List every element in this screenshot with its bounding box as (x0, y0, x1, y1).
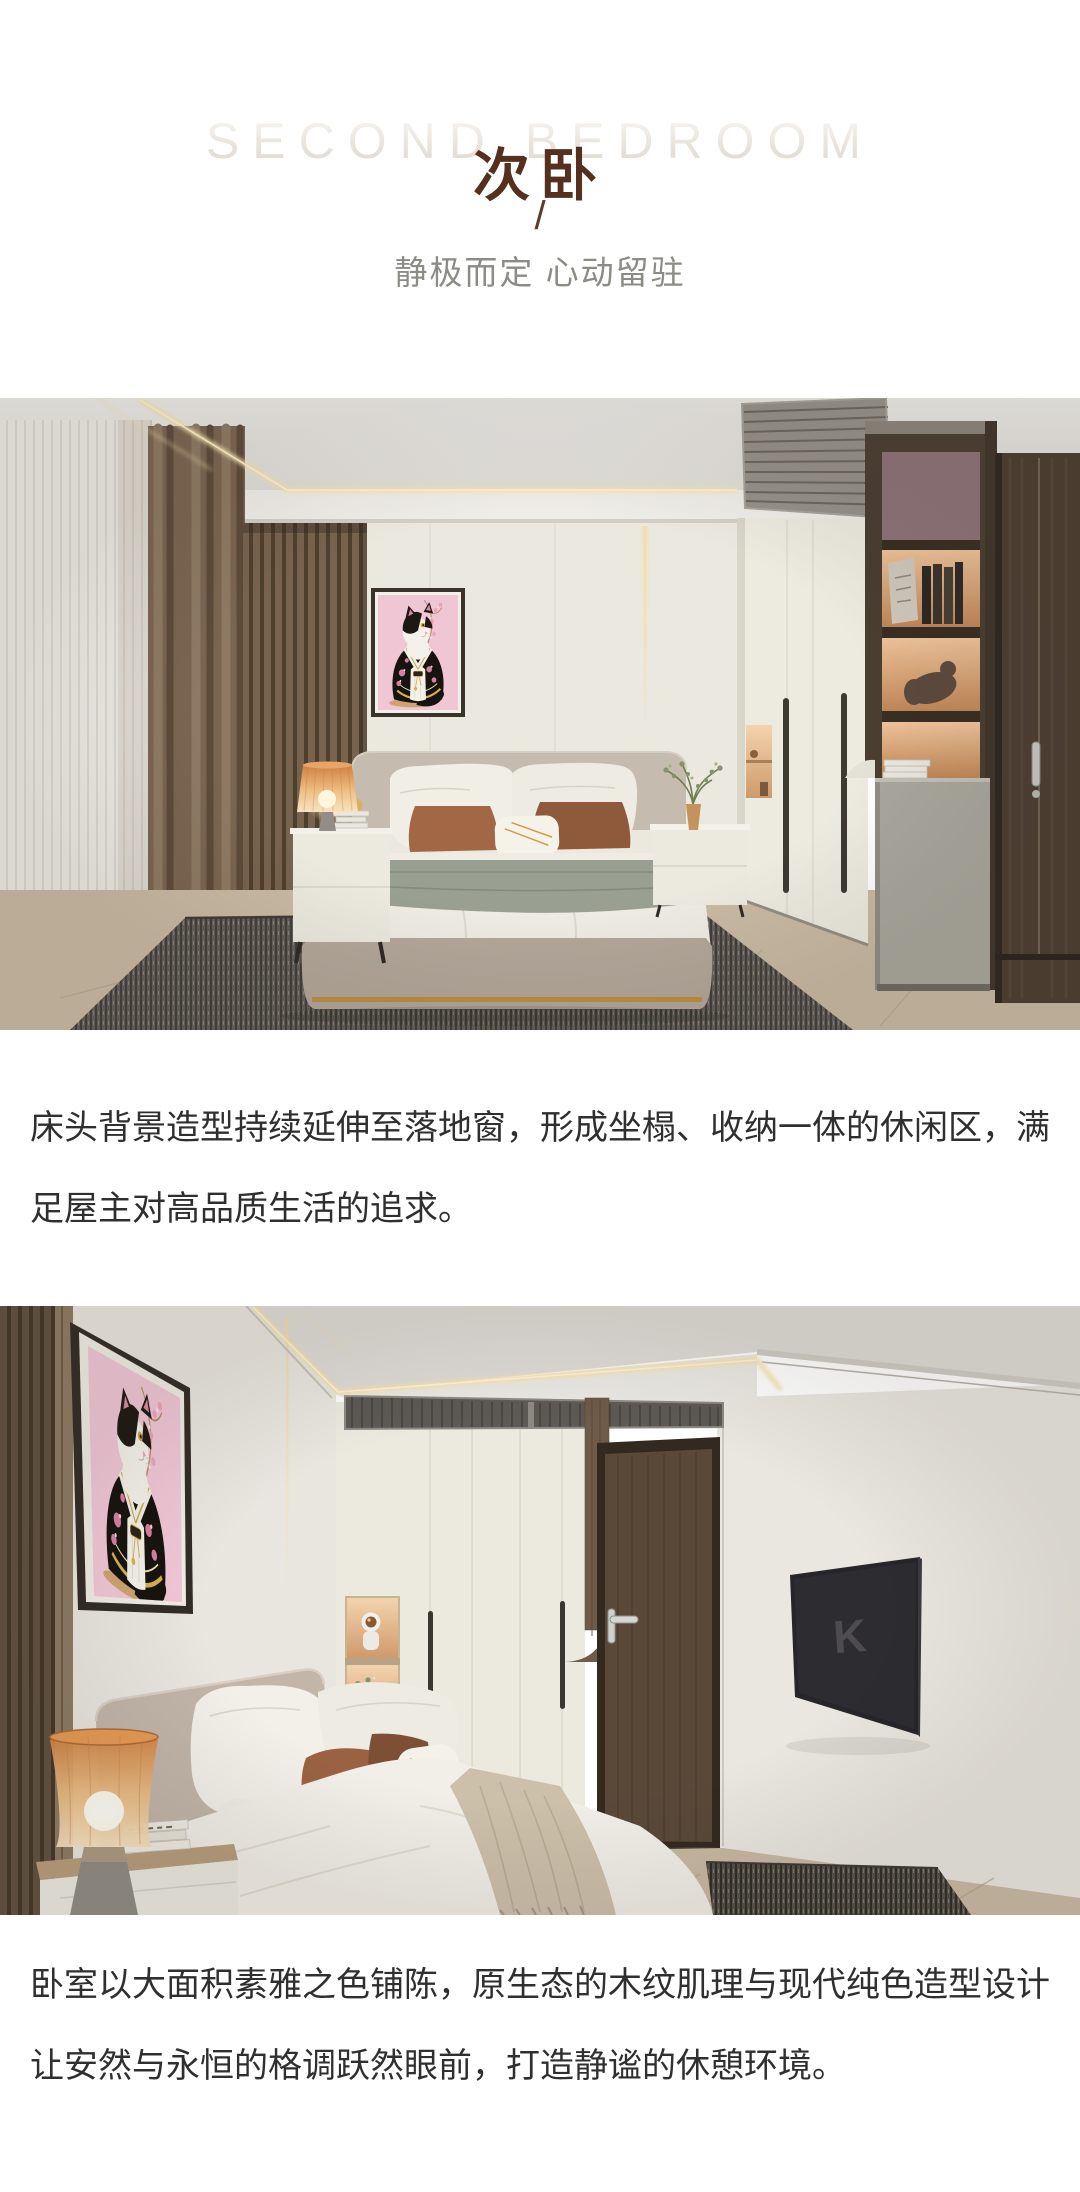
bedroom-photo-2: K (0, 1306, 1080, 1915)
intro-paragraph: 床头背景造型持续延伸至落地窗，形成坐榻、收纳一体的休闲区，满 足屋主对高品质生活… (0, 1030, 1080, 1306)
bedroom-render-1 (0, 398, 1080, 1030)
header-tagline: 静极而定 心动留驻 (0, 246, 1080, 294)
outro-line-2: 让安然与永恒的格调跃然眼前，打造静谧的休憩环境。 (30, 2026, 1050, 2107)
bedroom-photo-1 (0, 398, 1080, 1030)
section-header: SECOND BEDROOM 次卧 / 静极而定 心动留驻 (0, 0, 1080, 398)
article-page: SECOND BEDROOM 次卧 / 静极而定 心动留驻 (0, 0, 1080, 2192)
outro-paragraph: 卧室以大面积素雅之色铺陈，原生态的木纹肌理与现代纯色造型设计 让安然与永恒的格调… (0, 1915, 1080, 2192)
outro-line-1: 卧室以大面积素雅之色铺陈，原生态的木纹肌理与现代纯色造型设计 (30, 1945, 1050, 2026)
title-divider: / (0, 194, 1080, 239)
bedroom-render-2: K (0, 1306, 1080, 1915)
intro-line-1: 床头背景造型持续延伸至落地窗，形成坐榻、收纳一体的休闲区，满 (30, 1088, 1050, 1169)
intro-line-2: 足屋主对高品质生活的追求。 (30, 1169, 1050, 1250)
